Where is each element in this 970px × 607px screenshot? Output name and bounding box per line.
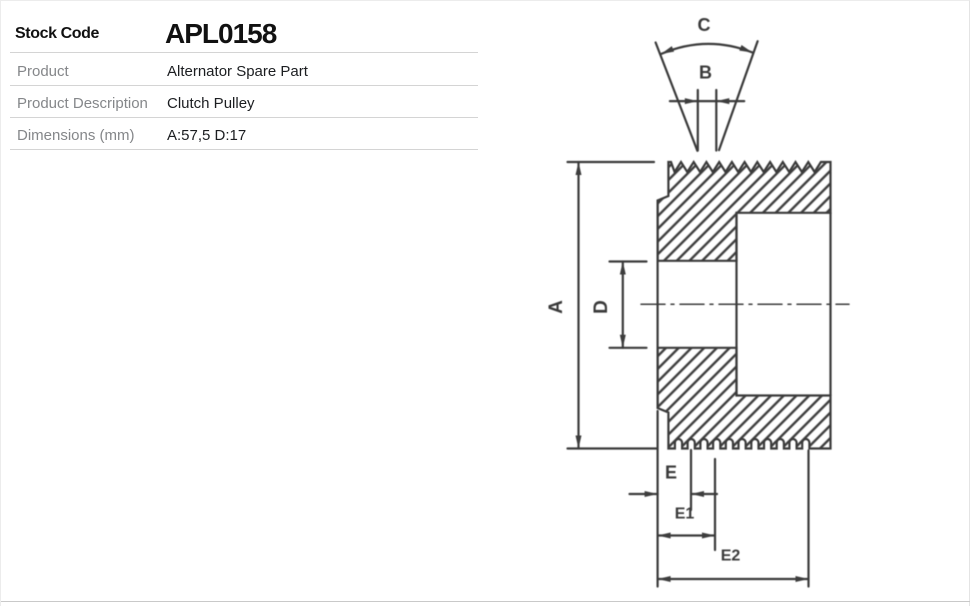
svg-text:E: E (665, 463, 677, 483)
svg-text:E2: E2 (721, 548, 741, 565)
svg-text:C: C (698, 15, 711, 35)
svg-text:D: D (591, 300, 612, 314)
svg-text:E1: E1 (675, 506, 695, 523)
svg-text:B: B (699, 63, 712, 83)
svg-text:A: A (546, 300, 567, 314)
